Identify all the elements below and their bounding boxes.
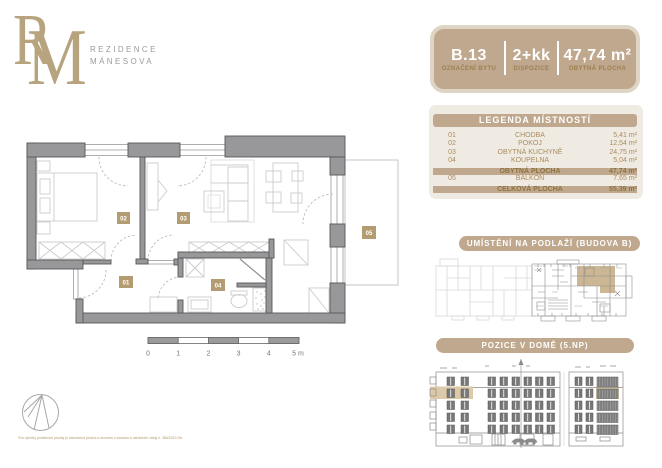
svg-text:01: 01 xyxy=(123,281,130,287)
svg-text:4: 4 xyxy=(267,351,271,358)
svg-text:03: 03 xyxy=(180,217,187,223)
svg-text:5 m: 5 m xyxy=(292,351,304,358)
svg-text:04: 04 xyxy=(215,284,222,290)
svg-text:2: 2 xyxy=(206,351,210,358)
svg-text:05: 05 xyxy=(366,231,373,237)
svg-text:3: 3 xyxy=(237,351,241,358)
svg-text:1: 1 xyxy=(176,351,180,358)
svg-text:0: 0 xyxy=(146,351,150,358)
svg-text:02: 02 xyxy=(120,217,127,223)
